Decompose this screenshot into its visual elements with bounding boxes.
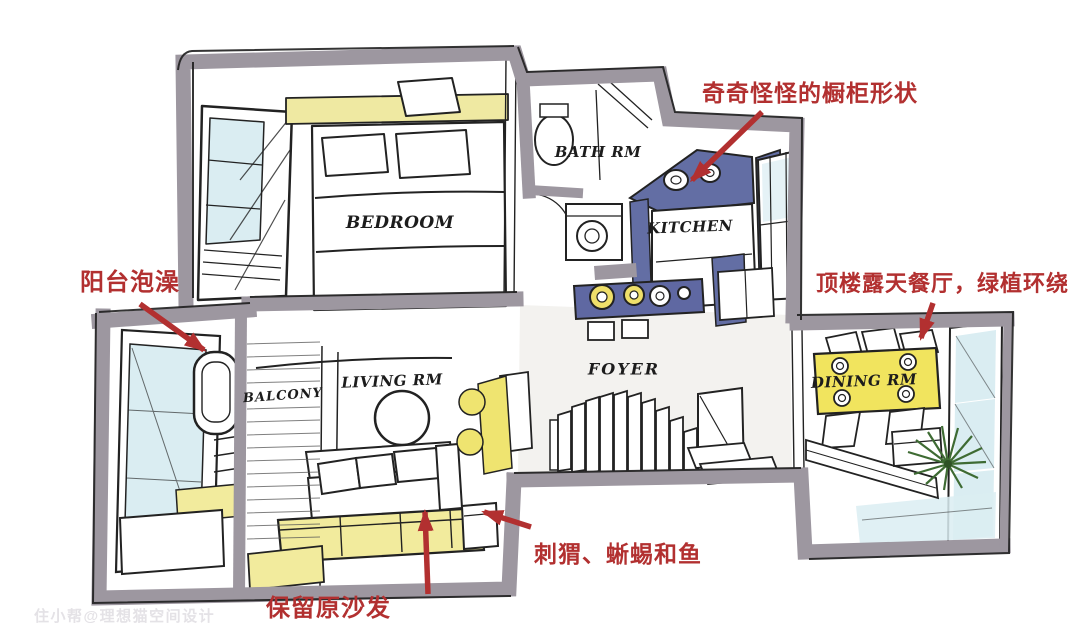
balcony-bench xyxy=(248,546,324,590)
bedroom-window xyxy=(198,106,292,300)
stool-white-2 xyxy=(678,287,690,299)
dining-floor-glass xyxy=(856,492,996,544)
room-label-foyer: FOYER xyxy=(588,360,660,379)
sofa xyxy=(306,442,462,520)
room-label-bedroom: BEDROOM xyxy=(346,213,454,233)
foyer-closet xyxy=(718,268,774,320)
watermark: 住小帮@理想猫空间设计 xyxy=(34,605,215,626)
bedroom-furniture xyxy=(198,57,516,310)
room-label-kitchen: KITCHEN xyxy=(647,217,734,238)
mirror-lines xyxy=(596,82,652,180)
annotation-balcony-bath: 阳台泡澡 xyxy=(80,262,180,297)
annotation-pets: 刺猬、蜥蜴和鱼 xyxy=(534,535,702,569)
annotation-sofa: 保留原沙发 xyxy=(266,588,391,623)
room-label-bath: BATH RM xyxy=(555,143,642,161)
sofa-annotation-arrow xyxy=(425,512,428,594)
floor-plan-sketch: BEDROOM BATH RM KITCHEN FOYER LIVING RM … xyxy=(0,0,1080,636)
dining-furniture xyxy=(792,322,1002,548)
stool-white-1 xyxy=(650,286,670,306)
tub-bench-white xyxy=(120,510,224,574)
headboard-shelf xyxy=(286,78,508,124)
pet-enclosure xyxy=(462,503,498,549)
washer xyxy=(566,204,622,260)
burner-1 xyxy=(664,170,688,190)
round-rug xyxy=(375,391,429,445)
room-label-living: LIVING RM xyxy=(341,370,443,392)
annotation-rooftop-dining: 顶楼露天餐厅，绿植环绕 xyxy=(816,266,1069,298)
annotation-cabinet: 奇奇怪怪的橱柜形状 xyxy=(702,74,918,108)
stairwell-railing xyxy=(792,330,804,470)
tub-balcony xyxy=(116,330,242,574)
room-label-dining: DINING RM xyxy=(811,370,918,392)
